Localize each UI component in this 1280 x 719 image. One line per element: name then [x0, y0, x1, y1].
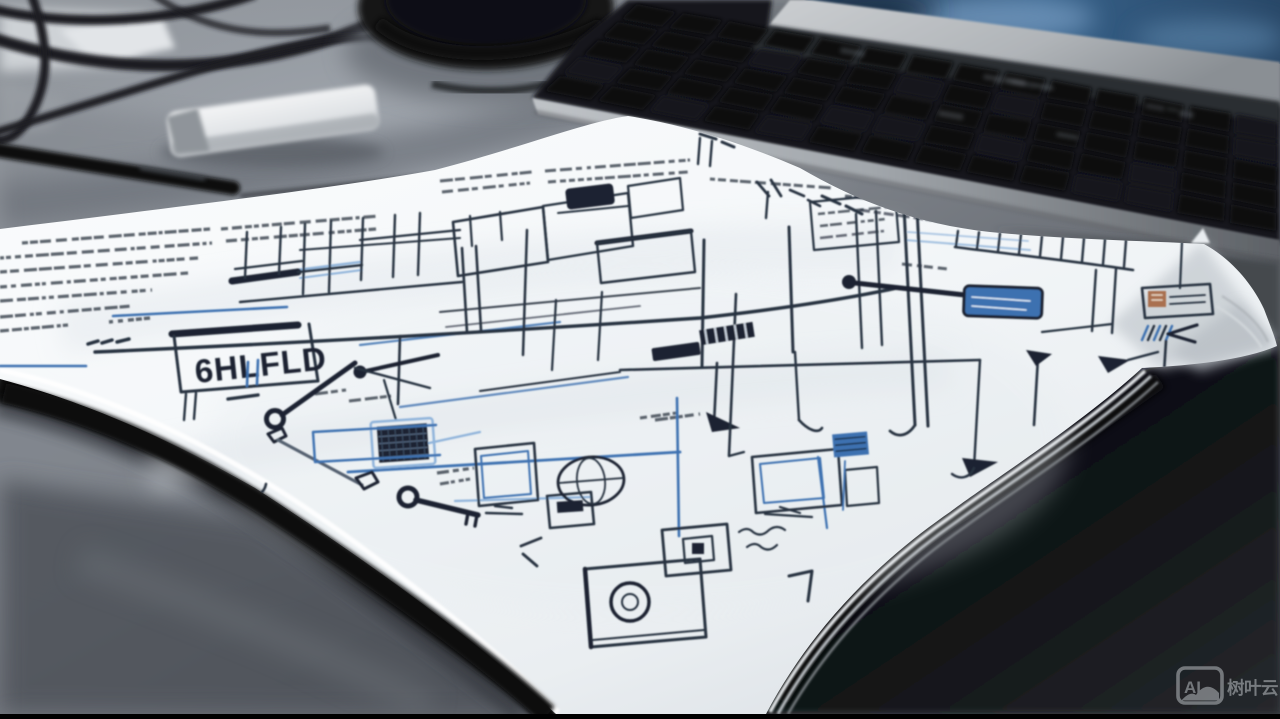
svg-text:树叶云: 树叶云	[1227, 678, 1278, 698]
svg-text:AI: AI	[1184, 678, 1201, 697]
